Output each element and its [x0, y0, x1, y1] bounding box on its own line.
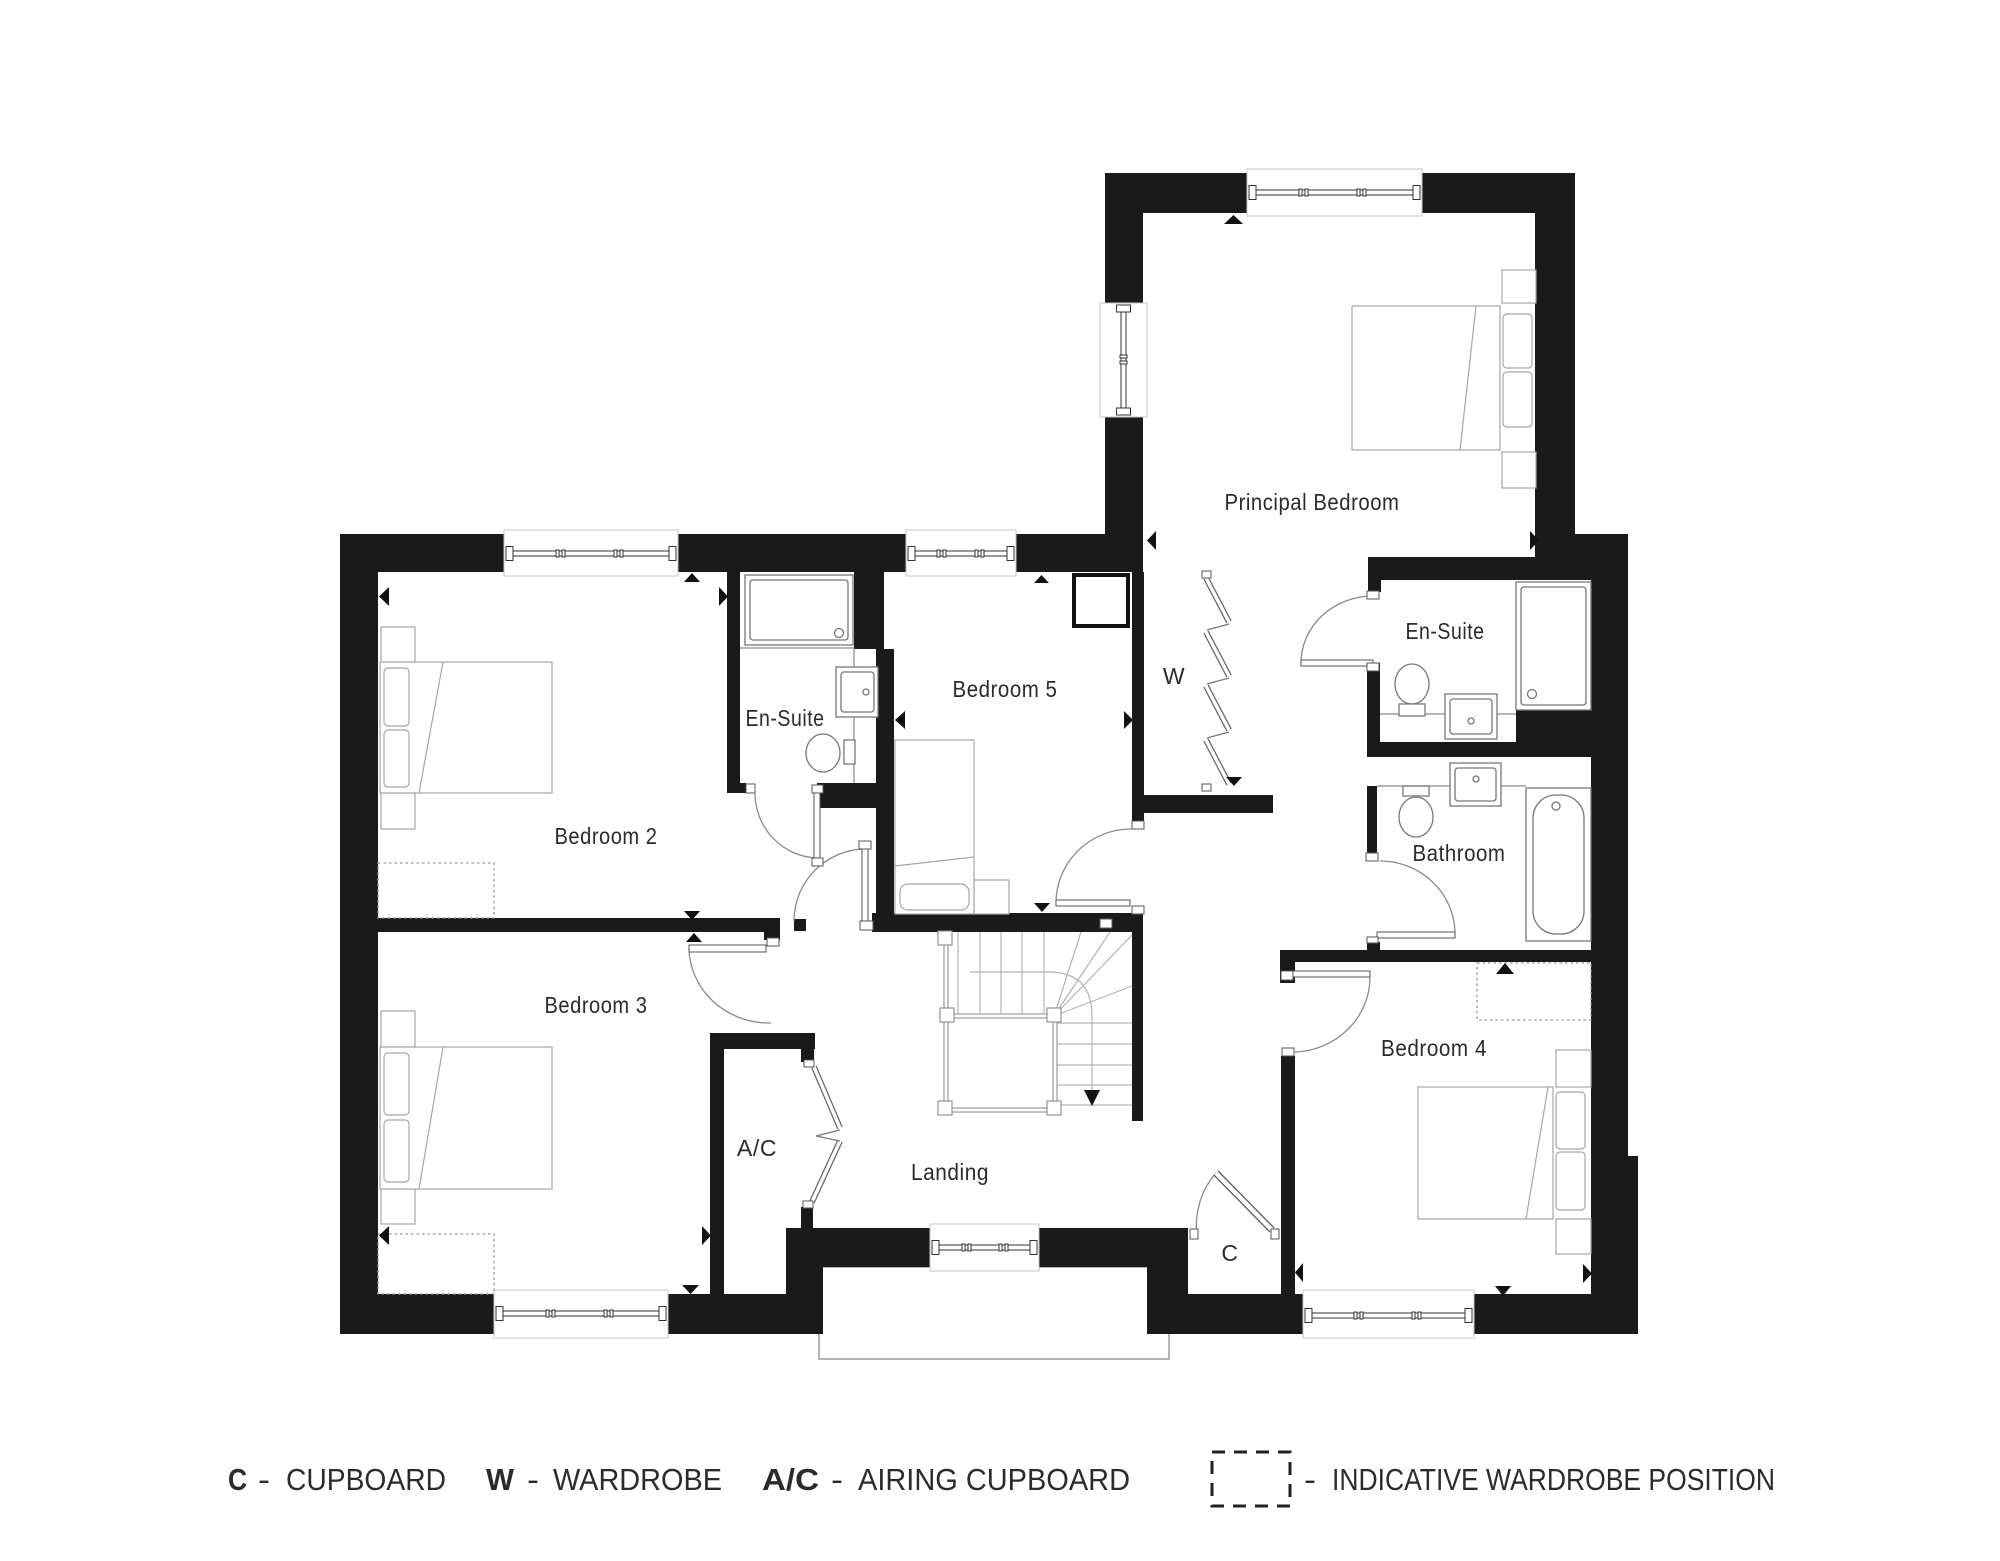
- svg-text:A/C: A/C: [762, 1462, 819, 1497]
- svg-text:CUPBOARD: CUPBOARD: [286, 1462, 446, 1497]
- svg-text:Landing: Landing: [911, 1159, 989, 1185]
- svg-text:Bedroom 2: Bedroom 2: [555, 823, 658, 849]
- svg-text:Bathroom: Bathroom: [1413, 840, 1506, 866]
- svg-text:-: -: [831, 1462, 843, 1497]
- svg-text:W: W: [486, 1462, 515, 1497]
- svg-text:W: W: [1163, 663, 1185, 689]
- svg-text:Bedroom 4: Bedroom 4: [1381, 1035, 1487, 1061]
- svg-text:-: -: [1304, 1462, 1316, 1497]
- svg-text:-: -: [258, 1462, 270, 1497]
- svg-text:WARDROBE: WARDROBE: [553, 1462, 722, 1497]
- svg-text:A/C: A/C: [737, 1135, 777, 1161]
- svg-text:Bedroom 5: Bedroom 5: [953, 676, 1058, 702]
- svg-text:C: C: [228, 1462, 247, 1497]
- svg-text:Principal Bedroom: Principal Bedroom: [1225, 489, 1400, 515]
- svg-text:En-Suite: En-Suite: [1406, 618, 1485, 644]
- svg-text:-: -: [527, 1462, 539, 1497]
- svg-text:AIRING CUPBOARD: AIRING CUPBOARD: [858, 1462, 1130, 1497]
- svg-text:INDICATIVE WARDROBE POSITION: INDICATIVE WARDROBE POSITION: [1332, 1462, 1775, 1497]
- svg-text:En-Suite: En-Suite: [746, 705, 825, 731]
- svg-text:C: C: [1221, 1240, 1238, 1266]
- svg-text:Bedroom 3: Bedroom 3: [545, 992, 648, 1018]
